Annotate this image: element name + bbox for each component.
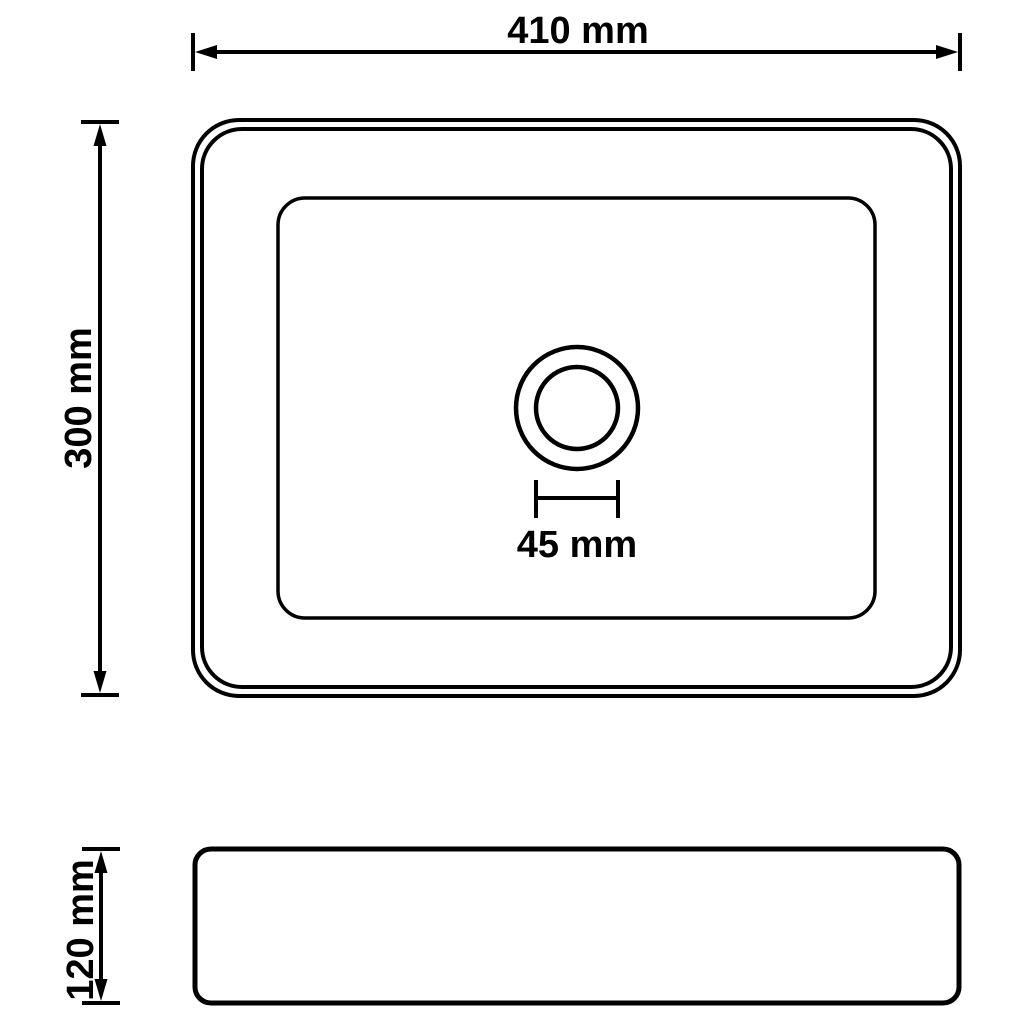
height-dimension-label: 300 mm xyxy=(58,327,100,469)
height-dimension: 300 mm xyxy=(58,122,119,695)
drain-dimension: 45 mm xyxy=(517,480,637,566)
width-dimension-label: 410 mm xyxy=(507,10,649,52)
width-dimension: 410 mm xyxy=(193,10,960,71)
depth-dimension: 120 mm xyxy=(60,849,120,1003)
sink-side-view xyxy=(195,849,959,1003)
sink-top-view xyxy=(193,120,960,696)
width-dimension-right-arrow-icon xyxy=(936,45,958,59)
height-dimension-down-arrow-icon xyxy=(94,671,107,693)
sink-side-profile-outline xyxy=(195,849,959,1003)
depth-dimension-label: 120 mm xyxy=(60,859,102,1001)
sink-rim-inner-outline xyxy=(202,129,951,687)
drawing-canvas: 410 mm 300 mm 45 mm 120 mm xyxy=(0,0,1024,1024)
drain-dimension-label: 45 mm xyxy=(517,524,637,566)
width-dimension-left-arrow-icon xyxy=(195,45,217,59)
height-dimension-up-arrow-icon xyxy=(94,124,107,146)
sink-outer-rim-outline xyxy=(193,120,960,696)
washbasin-technical-drawing: 410 mm 300 mm 45 mm 120 mm xyxy=(0,0,1024,1024)
drain-inner-circle xyxy=(536,367,618,449)
